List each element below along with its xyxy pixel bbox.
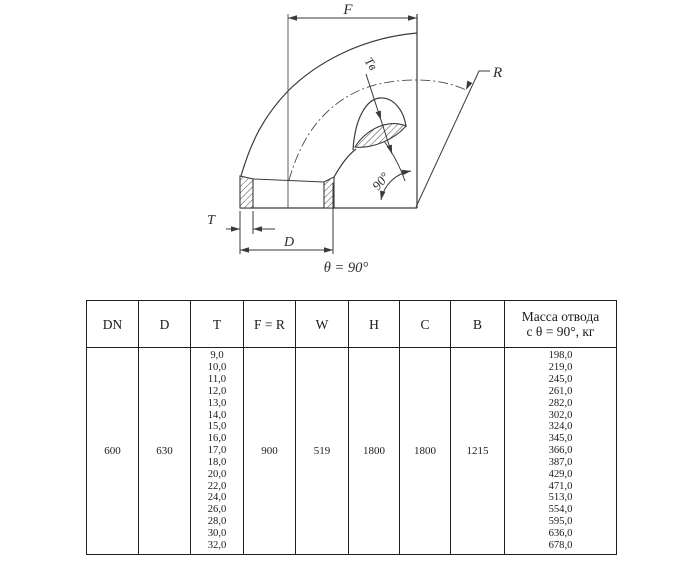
value-line: 11,0 [191, 374, 243, 386]
cell-mass-values: 198,0219,0245,0261,0282,0302,0324,0345,0… [505, 348, 617, 555]
value-line: 17,0 [191, 445, 243, 457]
value-line: 24,0 [191, 492, 243, 504]
d-arrow-right [324, 247, 333, 253]
col-header-w: W [296, 301, 349, 348]
cell-d: 630 [139, 348, 191, 555]
value-line: 9,0 [191, 350, 243, 362]
value-line: 261,0 [505, 386, 616, 398]
dim-label-t: T [207, 213, 216, 228]
value-line: 302,0 [505, 410, 616, 422]
tv-arrow-mid [376, 111, 384, 121]
value-line: 15,0 [191, 421, 243, 433]
table-header-row: DN D T F = R W H C B Масса отвода с θ = … [87, 301, 617, 348]
t-ext-lines [240, 211, 253, 254]
value-line: 16,0 [191, 433, 243, 445]
value-line: 366,0 [505, 445, 616, 457]
mass-values-stack: 198,0219,0245,0261,0282,0302,0324,0345,0… [505, 348, 616, 554]
value-line: 30,0 [191, 528, 243, 540]
value-line: 595,0 [505, 516, 616, 528]
col-header-b: B [451, 301, 505, 348]
value-line: 10,0 [191, 362, 243, 374]
value-line: 471,0 [505, 481, 616, 493]
col-header-c: C [400, 301, 451, 348]
value-line: 245,0 [505, 374, 616, 386]
value-line: 26,0 [191, 504, 243, 516]
value-line: 429,0 [505, 469, 616, 481]
value-line: 22,0 [191, 481, 243, 493]
dim-label-r: R [492, 65, 502, 81]
value-line: 219,0 [505, 362, 616, 374]
dimension-lines [226, 18, 490, 254]
col-header-t: T [191, 301, 244, 348]
angle-arrow-top [402, 168, 412, 175]
value-line: 28,0 [191, 516, 243, 528]
angle-label: 90° [369, 169, 392, 193]
dimensions-table: DN D T F = R W H C B Масса отвода с θ = … [86, 300, 617, 555]
col-header-h: H [349, 301, 400, 348]
elbow-technical-drawing: F R T D Tв 90° θ = 90° [0, 0, 700, 295]
t-arrow-right [253, 226, 262, 232]
cell-c: 1800 [400, 348, 451, 555]
r-leader-line [416, 71, 490, 207]
inner-arc [334, 149, 356, 177]
value-line: 324,0 [505, 421, 616, 433]
col-header-dn: DN [87, 301, 139, 348]
col-header-f-r: F = R [244, 301, 296, 348]
value-line: 513,0 [505, 492, 616, 504]
arrowheads [231, 15, 472, 253]
value-line: 345,0 [505, 433, 616, 445]
cell-f-r: 900 [244, 348, 296, 555]
f-arrow-left [288, 15, 297, 21]
value-line: 14,0 [191, 410, 243, 422]
value-line: 387,0 [505, 457, 616, 469]
value-line: 282,0 [505, 398, 616, 410]
dim-label-tv: Tв [362, 55, 381, 74]
value-line: 32,0 [191, 540, 243, 552]
value-line: 198,0 [505, 350, 616, 362]
col-header-d: D [139, 301, 191, 348]
page: F R T D Tв 90° θ = 90° DN D T F = R W H … [0, 0, 700, 573]
dim-label-f: F [342, 2, 353, 18]
cell-b: 1215 [451, 348, 505, 555]
value-line: 678,0 [505, 540, 616, 552]
tv-arrow-end [387, 145, 395, 155]
upper-wall-crescent [355, 124, 406, 148]
value-line: 636,0 [505, 528, 616, 540]
cell-w: 519 [296, 348, 349, 555]
value-line: 13,0 [191, 398, 243, 410]
dim-label-d: D [283, 235, 294, 250]
value-line: 554,0 [505, 504, 616, 516]
value-line: 20,0 [191, 469, 243, 481]
theta-caption: θ = 90° [324, 260, 369, 276]
t-arrow-left [231, 226, 240, 232]
outer-arc [241, 33, 417, 176]
cell-t-values: 9,010,011,012,013,014,015,016,017,018,02… [191, 348, 244, 555]
t-values-stack: 9,010,011,012,013,014,015,016,017,018,02… [191, 348, 243, 554]
table-data-row: 600 630 9,010,011,012,013,014,015,016,01… [87, 348, 617, 555]
cell-h: 1800 [349, 348, 400, 555]
value-line: 12,0 [191, 386, 243, 398]
col-header-mass: Масса отвода с θ = 90°, кг [505, 301, 617, 348]
d-arrow-left [240, 247, 249, 253]
left-wall-section [240, 176, 253, 208]
cell-dn: 600 [87, 348, 139, 555]
value-line: 18,0 [191, 457, 243, 469]
f-arrow-right [408, 15, 417, 21]
bottom-opening-back-edge [253, 179, 324, 182]
